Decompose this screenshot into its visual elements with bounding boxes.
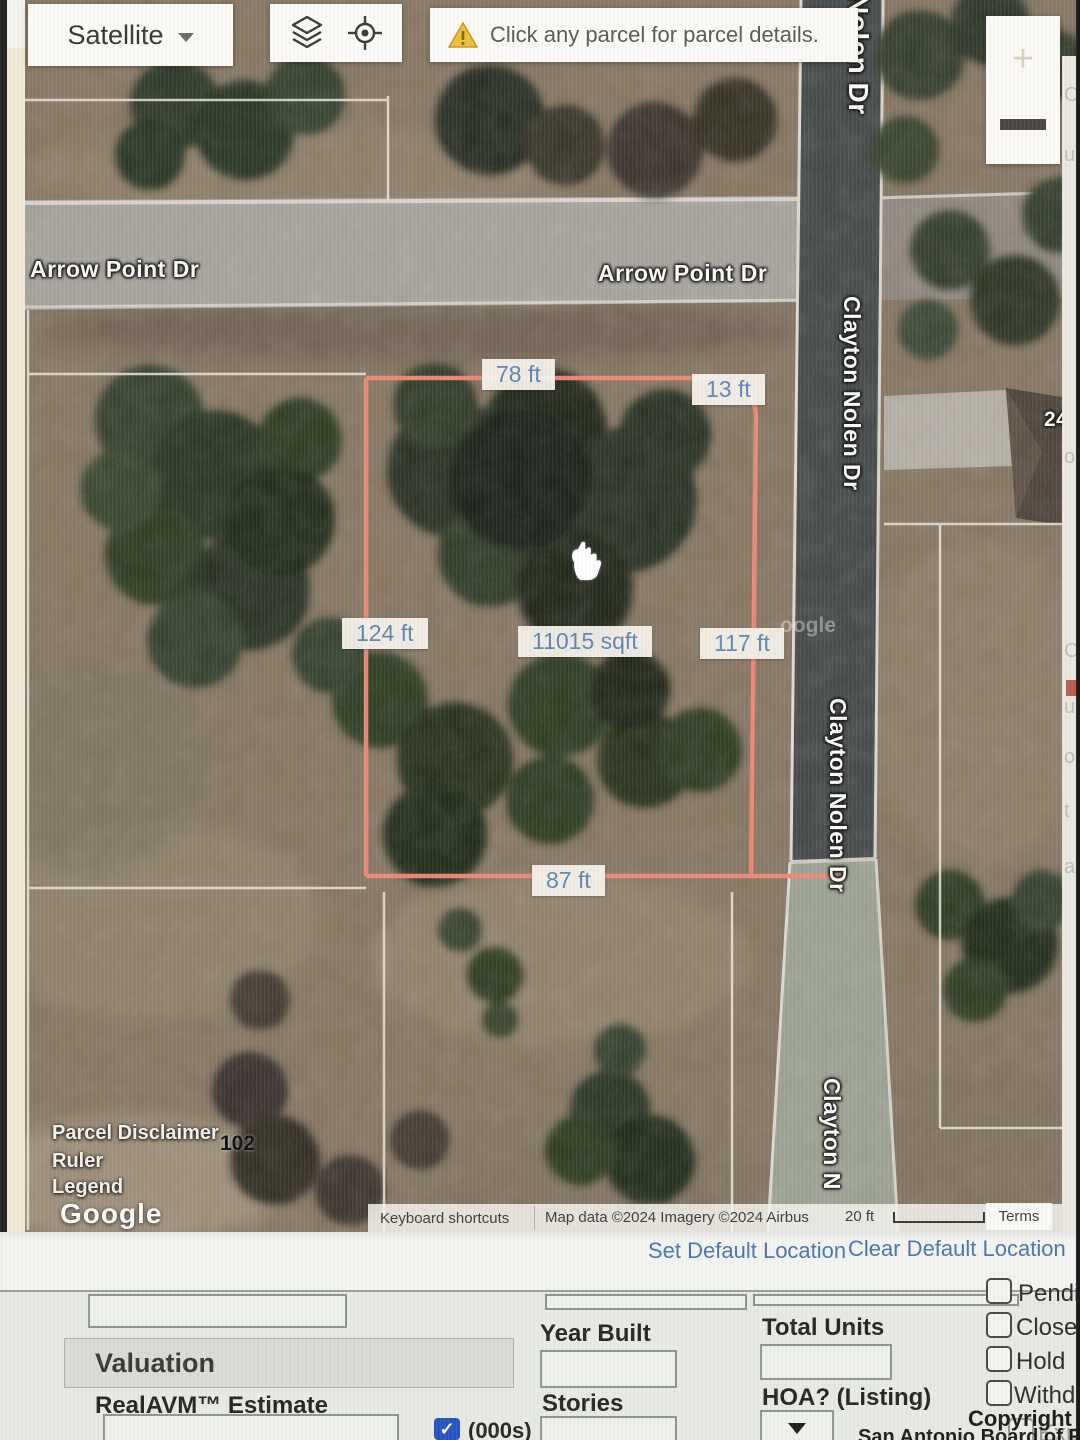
measure-ne-corner: 13 ft (692, 374, 765, 405)
terms-link-box[interactable]: Terms (986, 1203, 1052, 1230)
total-units-input[interactable] (760, 1344, 892, 1380)
satellite-imagery (0, 0, 1080, 1232)
parcel-number-label: 102 (220, 1132, 255, 1156)
photo-edge-left-top (7, 0, 25, 48)
cropped-input-middle[interactable] (545, 1294, 747, 1310)
select-chevron-icon (788, 1423, 806, 1434)
warning-triangle-icon (448, 21, 478, 49)
measure-area: 11015 sqft (518, 626, 652, 657)
parcel-disclaimer-link[interactable]: Parcel Disclaimer (52, 1122, 219, 1145)
edge-text-fragment: o (1064, 446, 1075, 469)
year-built-input[interactable] (540, 1350, 677, 1388)
zoom-in-button[interactable]: + (986, 38, 1060, 81)
hold-checkbox[interactable] (986, 1346, 1012, 1372)
photo-edge-right-dark (1076, 0, 1080, 1440)
parcel-warning-text: Click any parcel for parcel details. (490, 22, 819, 48)
edge-text-fragment: o (1064, 746, 1075, 769)
realavm-input[interactable] (103, 1414, 399, 1440)
zoom-out-button[interactable] (1000, 119, 1046, 130)
map-tools-toolbar (270, 4, 402, 62)
pending-label: Pending (1018, 1280, 1080, 1308)
screen: Arrow Point Dr Arrow Point Dr Nolen Dr C… (0, 0, 1080, 1440)
hold-label: Hold (1016, 1348, 1065, 1376)
set-default-location-link[interactable]: Set Default Location (648, 1238, 846, 1264)
edge-text-fragment: a (1064, 856, 1075, 879)
zoom-control: + (986, 16, 1060, 164)
clear-default-location-link[interactable]: Clear Default Location (848, 1236, 1066, 1262)
measure-south-edge: 87 ft (532, 865, 605, 896)
measure-top-edge: 78 ft (482, 359, 555, 390)
thousands-checkbox[interactable]: ✓ (434, 1418, 460, 1440)
parcel-warning-banner: Click any parcel for parcel details. (430, 8, 858, 62)
street-label-clayton-lower: Clayton Nolen Dr (824, 698, 851, 893)
street-label-arrow-point-right: Arrow Point Dr (598, 260, 767, 287)
closed-checkbox[interactable] (986, 1312, 1012, 1338)
legend-link[interactable]: Legend (52, 1176, 123, 1199)
pending-checkbox[interactable] (986, 1278, 1012, 1304)
photo-edge-left-dark (0, 0, 7, 1232)
measure-east-edge: 117 ft (700, 628, 784, 659)
street-label-clayton-mid: Clayton Nolen Dr (838, 296, 865, 491)
satellite-dropdown-button[interactable]: Satellite (28, 4, 233, 66)
street-label-clayton-bottom: Clayton N (818, 1078, 845, 1190)
google-watermark-fragment: oogle (780, 614, 836, 638)
scale-bar (893, 1212, 985, 1223)
stories-input[interactable] (540, 1416, 677, 1440)
attribution-divider (534, 1206, 535, 1230)
keyboard-shortcuts-link[interactable]: Keyboard shortcuts (380, 1210, 509, 1227)
thousands-label: (000s) (468, 1418, 532, 1440)
street-label-arrow-point-left: Arrow Point Dr (30, 256, 199, 283)
cropped-input-left[interactable] (88, 1294, 347, 1328)
withdrawn-checkbox[interactable] (986, 1380, 1012, 1406)
ruler-link[interactable]: Ruler (52, 1150, 103, 1173)
map-canvas[interactable]: Arrow Point Dr Arrow Point Dr Nolen Dr C… (0, 0, 1080, 1232)
valuation-section-header: Valuation (64, 1338, 514, 1388)
below-map-strip: Set Default Location Clear Default Locat… (0, 1232, 1080, 1290)
stories-label: Stories (542, 1390, 623, 1418)
valuation-header-label: Valuation (95, 1348, 215, 1379)
edge-text-fragment: u (1064, 144, 1075, 167)
chevron-down-icon (178, 33, 194, 42)
terms-link[interactable]: Terms (999, 1208, 1040, 1225)
hoa-select[interactable] (760, 1410, 834, 1440)
locate-target-icon[interactable] (345, 13, 385, 53)
year-built-label: Year Built (540, 1320, 651, 1348)
satellite-dropdown-label: Satellite (67, 20, 163, 51)
google-logo: Google (60, 1198, 162, 1230)
layers-icon[interactable] (287, 13, 327, 53)
cropped-input-right[interactable] (753, 1294, 1019, 1306)
organization-line: San Antonio Board of Realtors® (858, 1426, 1080, 1440)
measure-west-edge: 124 ft (342, 618, 428, 649)
photo-edge-left-cream (7, 48, 25, 1232)
check-icon: ✓ (439, 1419, 454, 1440)
edge-text-fragment: u (1064, 696, 1075, 719)
property-form-section: Valuation RealAVM™ Estimate ✓ (000s) Yea… (0, 1290, 1080, 1440)
map-data-attribution: Map data ©2024 Imagery ©2024 Airbus (545, 1209, 809, 1226)
scale-label: 20 ft (845, 1208, 874, 1225)
hoa-label: HOA? (Listing) (762, 1384, 931, 1412)
closed-label: Closed (1016, 1314, 1080, 1342)
edge-text-fragment: t (1064, 800, 1070, 823)
total-units-label: Total Units (762, 1314, 884, 1342)
